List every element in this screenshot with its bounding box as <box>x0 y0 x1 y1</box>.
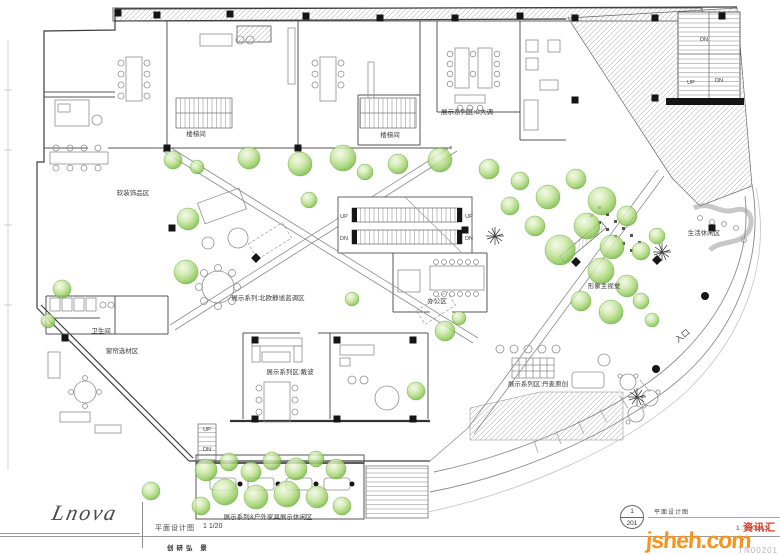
furniture-restroom <box>50 298 114 311</box>
structural-column <box>517 13 524 20</box>
structural-column <box>227 11 234 18</box>
room-label: UP <box>203 427 211 433</box>
watermark: TN00201 jsheh.com 资讯汇 <box>644 518 780 555</box>
structural-column <box>719 13 726 20</box>
sheet-title: 平面设计图 <box>654 507 689 516</box>
tree <box>452 311 466 325</box>
furniture-cmajor-tables <box>447 48 500 111</box>
furniture-bedroom <box>55 100 102 126</box>
room-label: 生活休闲区 <box>688 228 721 237</box>
tree <box>220 453 238 471</box>
title-block-divider <box>142 502 143 548</box>
tree <box>566 169 586 189</box>
tree <box>588 258 614 284</box>
tree <box>388 154 408 174</box>
tree <box>571 291 591 311</box>
watermark-brand-name: jsheh <box>645 527 702 553</box>
furniture-living-room <box>312 57 374 101</box>
drawing-title: 平面设计图 <box>155 523 195 533</box>
tree <box>545 235 575 265</box>
tree <box>212 479 238 505</box>
tree <box>238 147 260 169</box>
furniture-entry-lounge <box>618 374 660 424</box>
brand-logo: Lnova <box>49 500 145 530</box>
tree <box>574 213 600 239</box>
tree <box>435 321 455 341</box>
tree <box>308 451 324 467</box>
structural-column <box>452 15 459 22</box>
room-label: 入口 <box>673 328 691 345</box>
tree <box>263 452 281 470</box>
furniture-north-hall <box>200 28 295 84</box>
tree <box>536 185 560 209</box>
room-label: 软装饰品区 <box>117 188 150 197</box>
drawing-scale-note: 1 1/20 <box>203 523 222 530</box>
room-label: DN <box>465 236 473 242</box>
tree <box>41 314 55 328</box>
room-label: 办公区 <box>427 296 447 305</box>
sheet-number-top: 1 <box>621 506 643 517</box>
tree <box>274 481 300 507</box>
credit-line: 创研弘 景 <box>167 542 210 552</box>
site-lines <box>4 40 12 470</box>
furniture-office <box>398 260 484 297</box>
room-label: UP <box>340 214 348 220</box>
furniture-round-table <box>196 265 241 310</box>
tree <box>407 382 425 400</box>
structural-column <box>652 95 659 102</box>
room-label: 展示系列区:C大调 <box>441 107 493 116</box>
tree <box>525 216 545 236</box>
tree <box>244 485 268 509</box>
tree <box>192 497 210 515</box>
furniture-soft-deco <box>198 188 248 249</box>
watermark-brand: jsheh.com <box>645 527 752 554</box>
escalators <box>338 197 472 253</box>
tree <box>428 148 452 172</box>
structural-column <box>295 145 302 152</box>
structural-column <box>462 227 469 234</box>
room-label: 楼梯间 <box>380 130 400 139</box>
room-label: 楼梯间 <box>186 129 206 138</box>
ink-plant <box>628 388 646 406</box>
structural-column <box>303 13 310 20</box>
tree <box>326 459 346 479</box>
tree <box>357 164 373 180</box>
room-label: 展示系列区:丹麦原创 <box>508 379 568 388</box>
room-label: UP <box>687 80 695 86</box>
room-label: DN <box>203 447 211 453</box>
structural-column <box>410 337 417 344</box>
tree <box>330 145 356 171</box>
glass-line-column <box>701 292 709 300</box>
tree <box>345 292 359 306</box>
structural-column <box>410 416 417 423</box>
furniture-curtain-area <box>48 352 121 433</box>
room-label: 展示系列区:戴波 <box>266 367 314 376</box>
tree <box>632 242 650 260</box>
structural-column <box>115 10 122 17</box>
tree <box>333 497 351 515</box>
tree <box>241 462 261 482</box>
structural-column <box>252 337 259 344</box>
room-label: 窗帘选材区 <box>106 346 139 355</box>
room-label: 卫生间 <box>91 326 111 335</box>
tree <box>306 486 328 508</box>
tree <box>501 197 519 215</box>
tree <box>588 187 616 215</box>
logo-underline <box>0 533 140 534</box>
structural-column <box>334 337 341 344</box>
room-label: UP <box>465 214 473 220</box>
room-label: DN <box>700 37 708 43</box>
tree <box>288 152 312 176</box>
tree <box>479 159 499 179</box>
structural-column <box>334 416 341 423</box>
structural-column <box>62 335 69 342</box>
structural-column <box>652 255 662 265</box>
furniture-lifestyle-bar <box>694 206 751 250</box>
tree <box>177 208 199 230</box>
room-label: 展示系列:北欧静谧蓝调区 <box>231 293 305 302</box>
tree <box>195 459 217 481</box>
tree <box>617 206 637 226</box>
tree <box>301 192 317 208</box>
tree <box>599 300 623 324</box>
tree <box>649 228 665 244</box>
sheet-number-symbol: 1 201 <box>620 505 644 529</box>
tree <box>164 151 182 169</box>
structural-column <box>169 225 176 232</box>
tree <box>285 458 307 480</box>
furniture-meeting-west <box>118 57 150 101</box>
glass-line-column <box>652 365 660 373</box>
tree <box>174 260 198 284</box>
structural-column <box>572 15 579 22</box>
tree <box>142 482 160 500</box>
structural-column <box>572 97 579 104</box>
furniture-dining-west <box>50 145 108 171</box>
furniture-armchair-room <box>524 40 560 130</box>
tree <box>511 172 529 190</box>
structural-column <box>252 416 259 423</box>
interior-walls <box>44 21 566 419</box>
structural-column <box>164 145 171 152</box>
structural-column <box>652 15 659 22</box>
room-label: DN <box>340 236 348 242</box>
structural-column <box>251 253 261 263</box>
tree <box>645 313 659 327</box>
tree <box>190 160 204 174</box>
structural-column <box>377 15 384 22</box>
tree <box>633 293 649 309</box>
sheet-number-bottom: 201 <box>621 518 643 529</box>
furniture-daibo-room <box>252 338 302 422</box>
tree <box>53 280 71 298</box>
room-label: 形象主视觉 <box>588 281 621 290</box>
room-label: 展示系列&户外家具展示休闲区 <box>224 512 313 521</box>
ink-plant <box>486 227 504 245</box>
structural-column <box>154 12 161 19</box>
furniture-mid-room <box>340 345 399 410</box>
floor-plan-canvas: 楼梯间楼梯间展示系列区:C大调软装饰品区卫生间窗帘选材区展示系列:北欧静谧蓝调区… <box>0 0 780 555</box>
tree <box>600 235 624 259</box>
room-label: DN <box>715 78 723 84</box>
watermark-badge: 资讯汇 <box>743 519 776 534</box>
stairwell-northeast <box>666 12 744 105</box>
